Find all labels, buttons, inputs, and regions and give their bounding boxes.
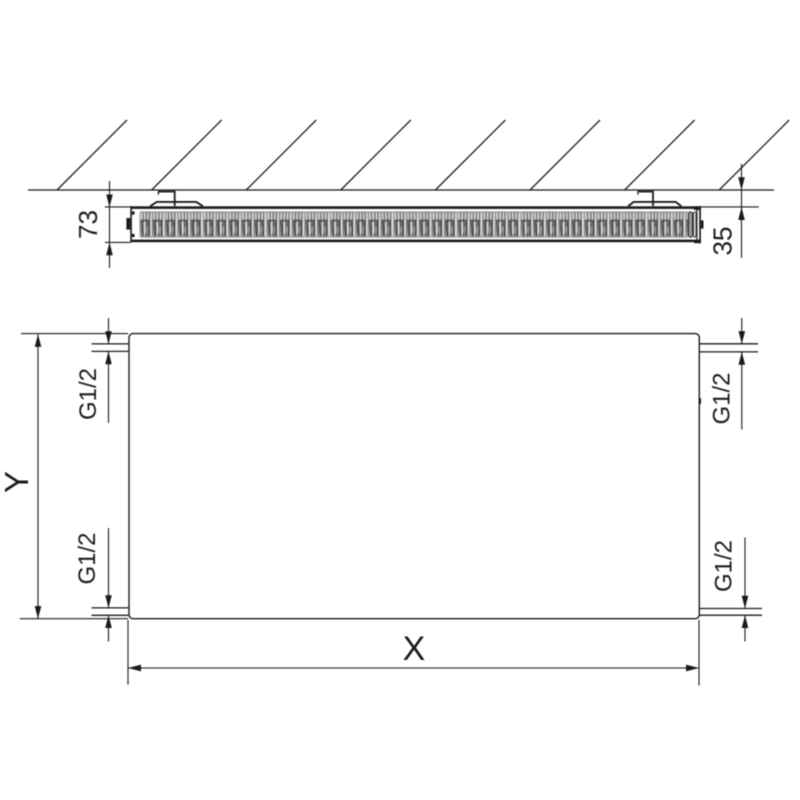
- svg-text:G1/2: G1/2: [74, 532, 101, 584]
- svg-text:G1/2: G1/2: [709, 372, 736, 424]
- svg-text:X: X: [403, 630, 426, 668]
- svg-text:73: 73: [73, 210, 103, 239]
- svg-text:G1/2: G1/2: [75, 368, 102, 420]
- svg-text:35: 35: [708, 227, 738, 256]
- svg-text:G1/2: G1/2: [711, 540, 738, 592]
- svg-text:Y: Y: [0, 471, 35, 493]
